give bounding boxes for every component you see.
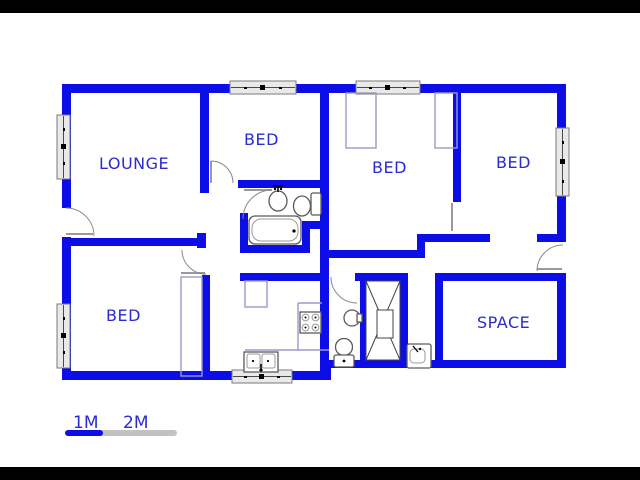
wall xyxy=(537,234,566,242)
room-label-bed-top-right: BED xyxy=(496,153,531,172)
room-label-bed-top-middle: BED xyxy=(244,130,279,149)
scale-bar-gray-segment xyxy=(98,430,177,436)
toilet xyxy=(294,193,322,216)
cupboard xyxy=(346,93,376,148)
room-label-bed-middle: BED xyxy=(372,158,407,177)
wall xyxy=(200,84,209,193)
wall xyxy=(322,360,566,368)
door-swing xyxy=(331,277,357,303)
second-toilet xyxy=(334,339,354,368)
room-label-space: SPACE xyxy=(477,313,530,332)
interior-walls xyxy=(62,84,566,380)
wall xyxy=(425,234,490,242)
door-swing xyxy=(211,161,233,183)
window xyxy=(556,128,569,196)
door-swing xyxy=(181,250,206,274)
wall xyxy=(329,250,423,258)
wall xyxy=(320,84,329,380)
wall xyxy=(435,273,566,281)
window xyxy=(57,115,70,179)
wall xyxy=(238,180,320,188)
floor-plan-canvas: LOUNGE BED BED BED BED SPACE 1M 2M xyxy=(0,0,640,480)
door-swing xyxy=(66,208,94,236)
vanity-basin xyxy=(407,344,431,368)
hand-basin xyxy=(344,310,362,326)
wall xyxy=(202,275,210,380)
scale-bar-blue-segment xyxy=(65,430,103,436)
kitchen-counter xyxy=(245,281,267,307)
wall xyxy=(435,273,443,368)
room-label-lounge: LOUNGE xyxy=(99,154,169,173)
exterior-walls xyxy=(62,84,566,380)
kitchen-sink xyxy=(244,352,278,372)
shower xyxy=(366,281,400,360)
window xyxy=(356,81,420,94)
window xyxy=(57,304,70,368)
floor-plan-drawing xyxy=(0,0,640,480)
wall xyxy=(360,281,366,368)
stove xyxy=(300,312,321,333)
wash-basin xyxy=(269,185,287,211)
wall xyxy=(62,84,566,93)
wall xyxy=(240,245,310,253)
door-swing xyxy=(537,245,563,271)
wall xyxy=(417,234,425,258)
wall xyxy=(62,238,205,246)
wardrobe xyxy=(181,277,202,376)
windows xyxy=(57,81,569,383)
window xyxy=(230,81,296,94)
room-label-bed-bottom-left: BED xyxy=(106,306,141,325)
wall xyxy=(302,221,329,229)
bathtub xyxy=(249,216,301,244)
wall xyxy=(557,275,566,368)
wall xyxy=(240,273,329,281)
